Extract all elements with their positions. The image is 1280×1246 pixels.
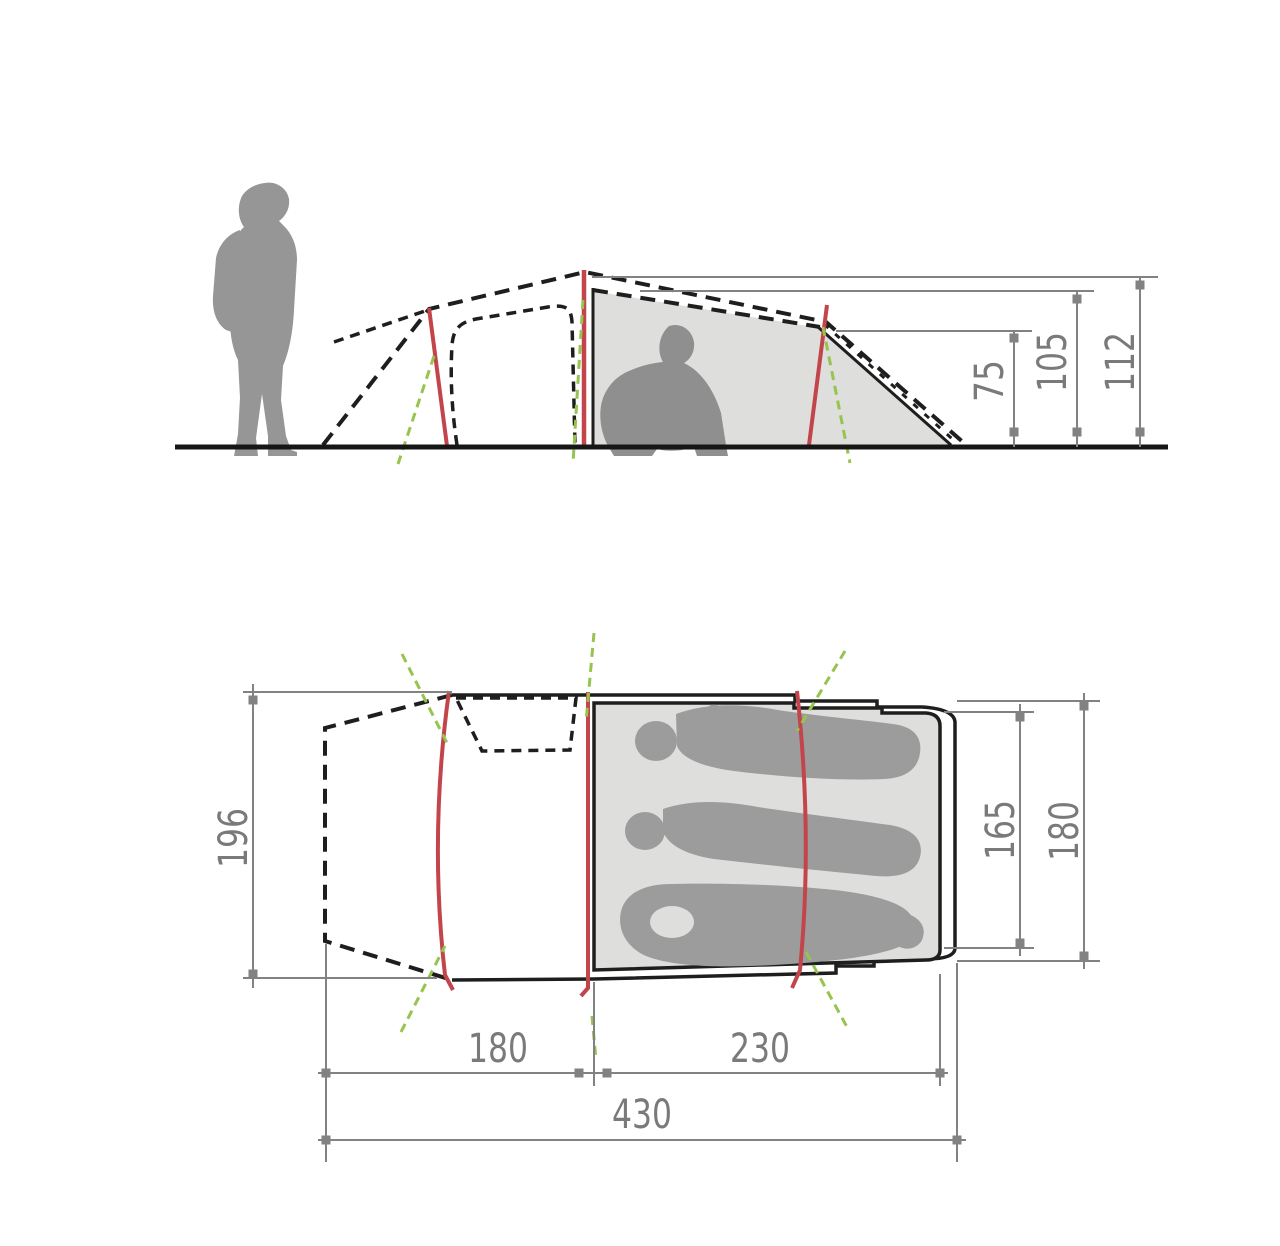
- tent-dimension-diagram: 75 105 112: [0, 0, 1280, 1246]
- standing-person-figure: [213, 183, 297, 456]
- dim-label-430: 430: [612, 1092, 672, 1138]
- dimension-inner-width: 165: [944, 704, 1034, 956]
- diagram-canvas: 75 105 112: [0, 0, 1280, 1246]
- dim-label-105: 105: [1030, 332, 1076, 392]
- dim-label-180-length: 180: [468, 1026, 528, 1072]
- sleeping-person-figures: [620, 705, 924, 966]
- plan-door-outline: [456, 698, 576, 751]
- dim-label-75: 75: [967, 360, 1013, 402]
- dim-label-230: 230: [730, 1026, 790, 1072]
- dim-label-112: 112: [1098, 332, 1144, 392]
- side-inner-door-outline: [451, 306, 575, 445]
- dim-label-180-width: 180: [1042, 801, 1088, 861]
- dim-label-196: 196: [211, 808, 257, 868]
- dim-label-165: 165: [978, 800, 1024, 860]
- side-view: 75 105 112: [175, 183, 1168, 464]
- plan-view: 196 165 180: [211, 633, 1100, 1162]
